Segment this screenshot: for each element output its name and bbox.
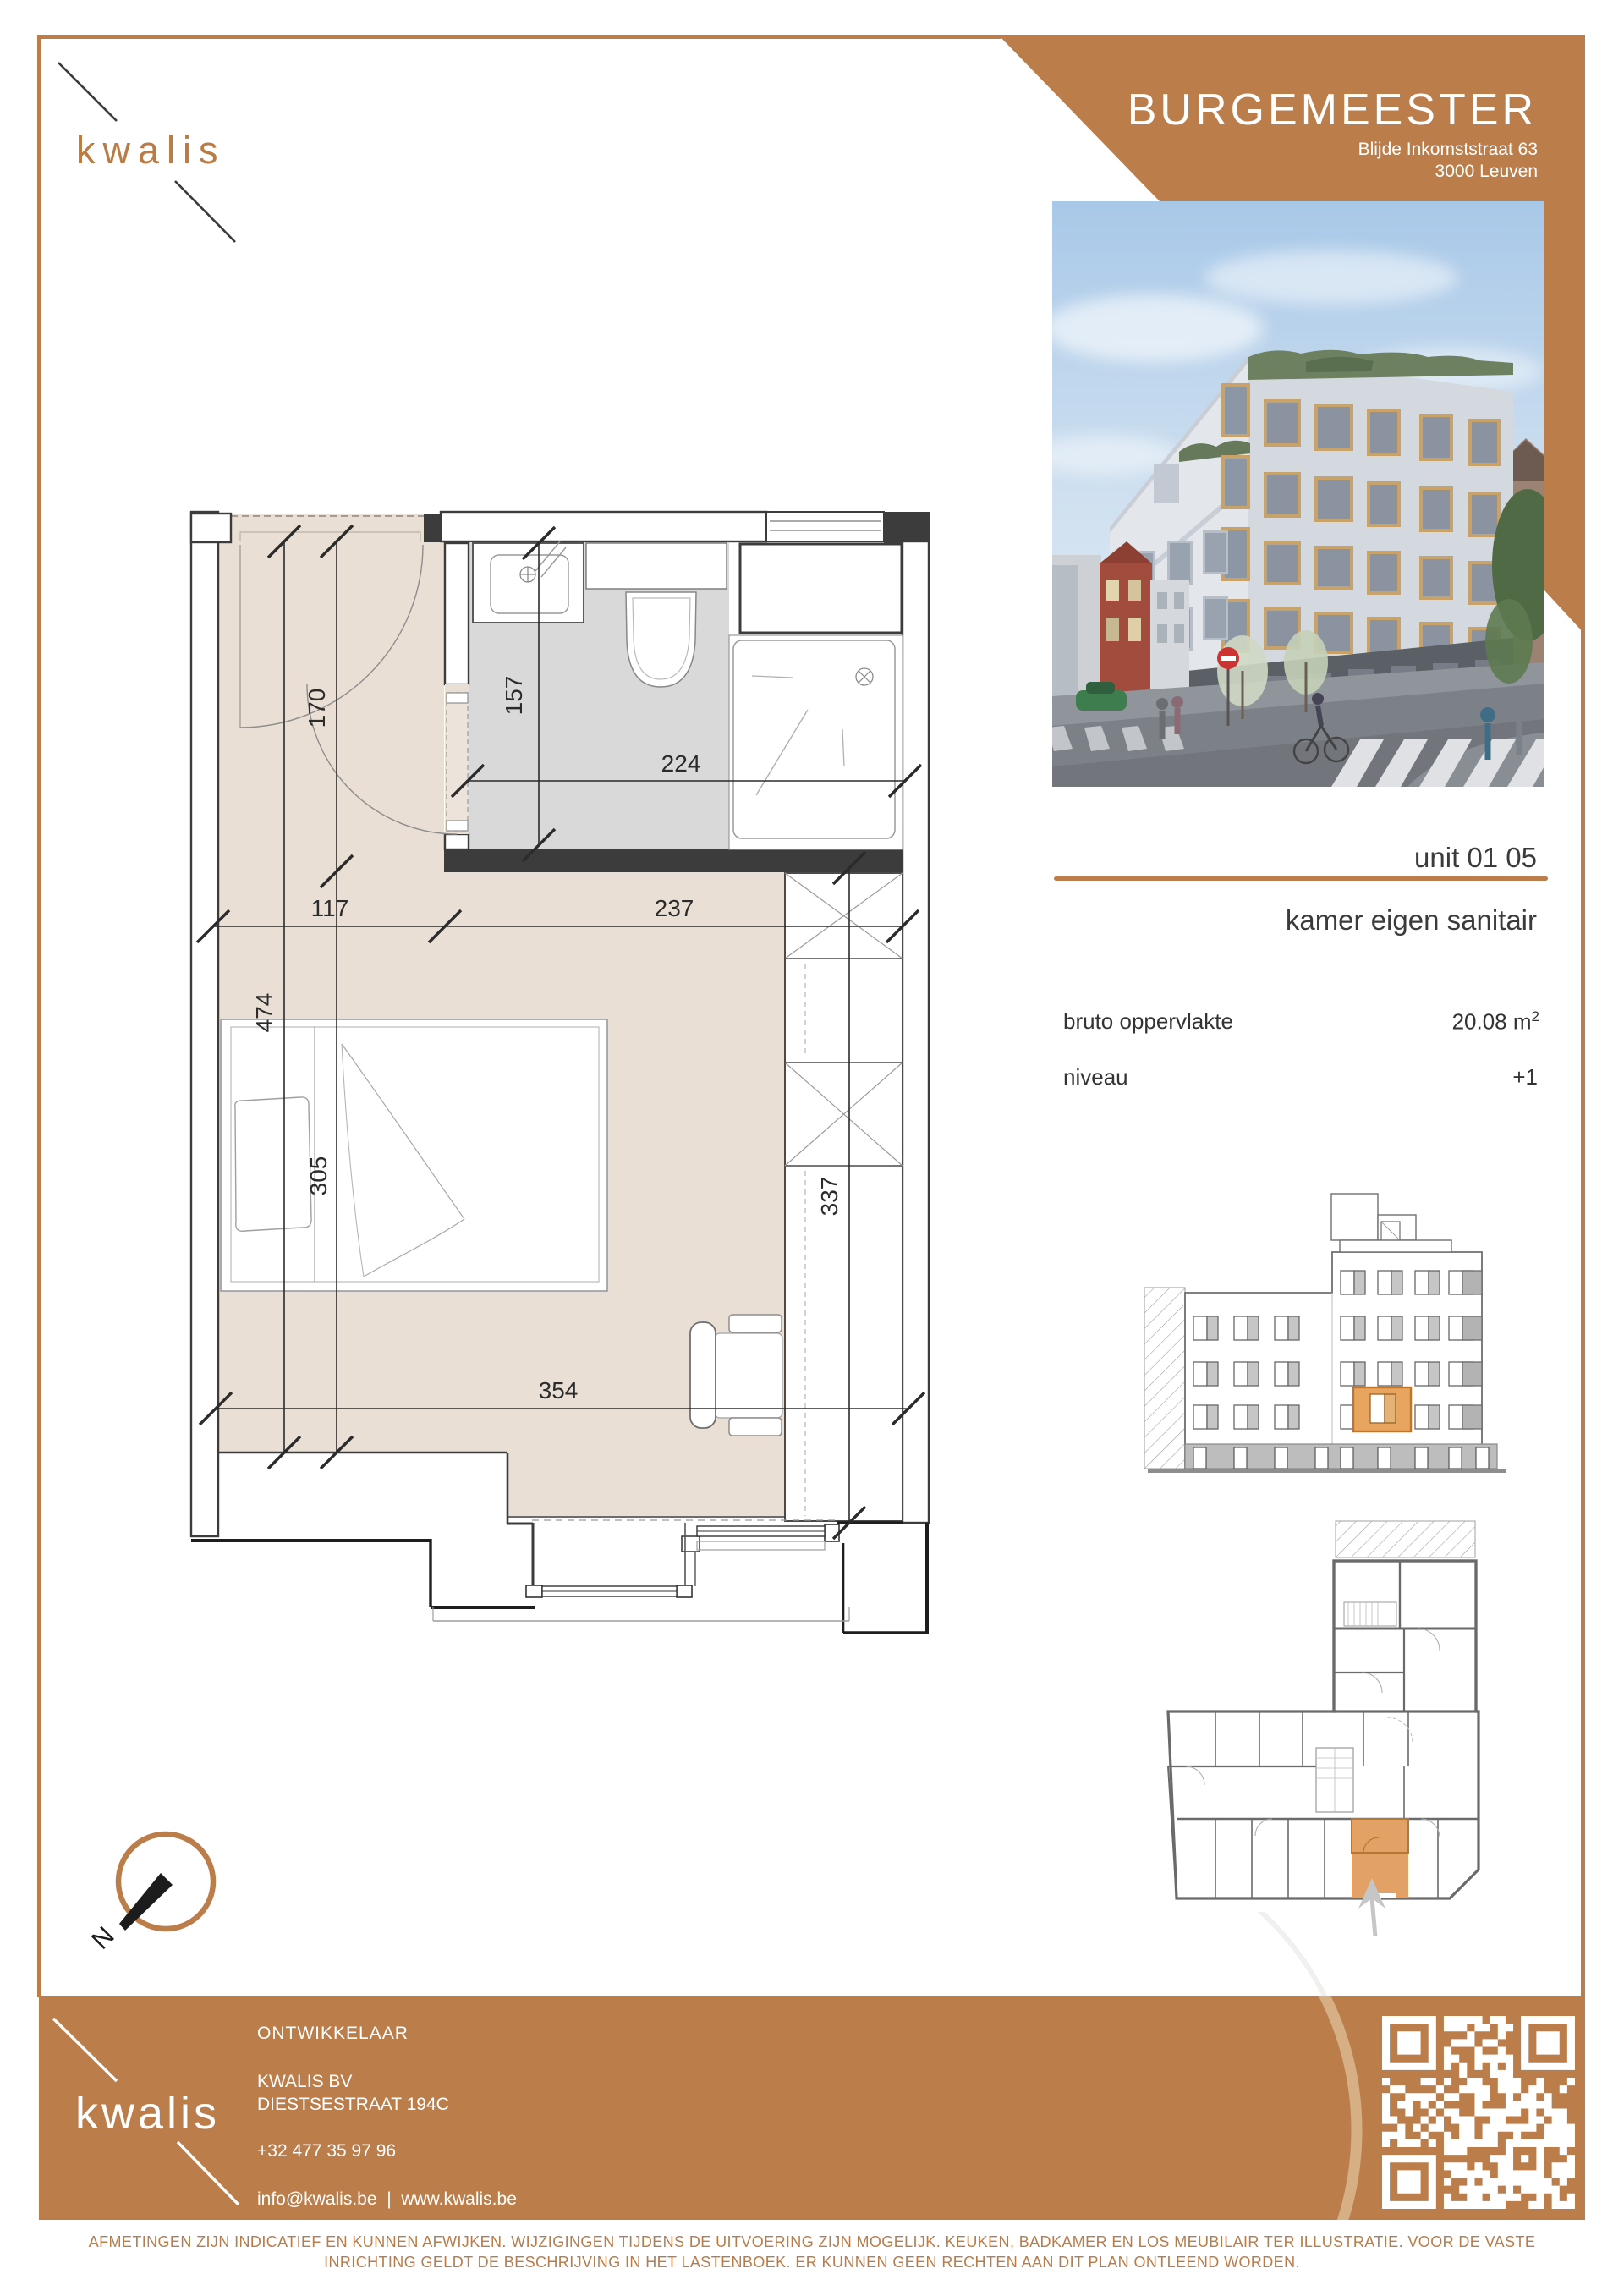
- svg-text:224: 224: [661, 750, 701, 777]
- svg-text:kwalis: kwalis: [75, 2088, 220, 2139]
- svg-text:157: 157: [501, 676, 527, 716]
- svg-text:117: 117: [311, 895, 349, 921]
- svg-text:474: 474: [251, 993, 277, 1033]
- svg-text:337: 337: [816, 1177, 842, 1217]
- svg-text:305: 305: [305, 1156, 332, 1196]
- svg-text:354: 354: [539, 1377, 579, 1403]
- svg-text:237: 237: [655, 895, 694, 921]
- svg-text:170: 170: [304, 689, 330, 728]
